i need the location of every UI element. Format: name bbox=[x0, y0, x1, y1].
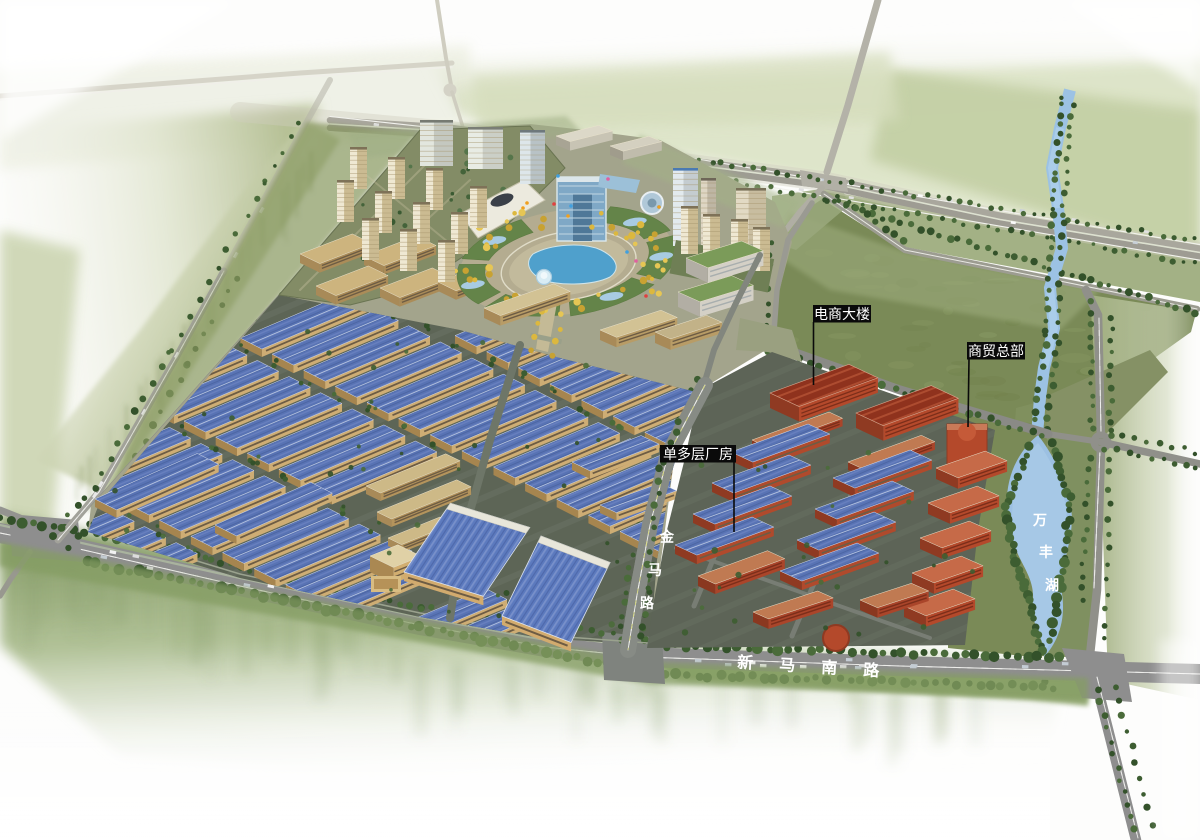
svg-text:马: 马 bbox=[779, 656, 796, 675]
svg-text:新: 新 bbox=[737, 653, 754, 673]
svg-text:丰: 丰 bbox=[1039, 544, 1053, 560]
svg-text:金: 金 bbox=[659, 529, 675, 545]
svg-text:单多层厂房: 单多层厂房 bbox=[663, 446, 733, 462]
svg-text:路: 路 bbox=[640, 595, 655, 611]
svg-text:路: 路 bbox=[863, 660, 881, 680]
svg-text:电商大楼: 电商大楼 bbox=[814, 306, 870, 322]
svg-text:湖: 湖 bbox=[1045, 577, 1059, 593]
svg-text:万: 万 bbox=[1032, 512, 1047, 528]
svg-text:南: 南 bbox=[821, 658, 838, 678]
svg-text:马: 马 bbox=[648, 562, 662, 578]
svg-text:商贸总部: 商贸总部 bbox=[968, 343, 1024, 359]
